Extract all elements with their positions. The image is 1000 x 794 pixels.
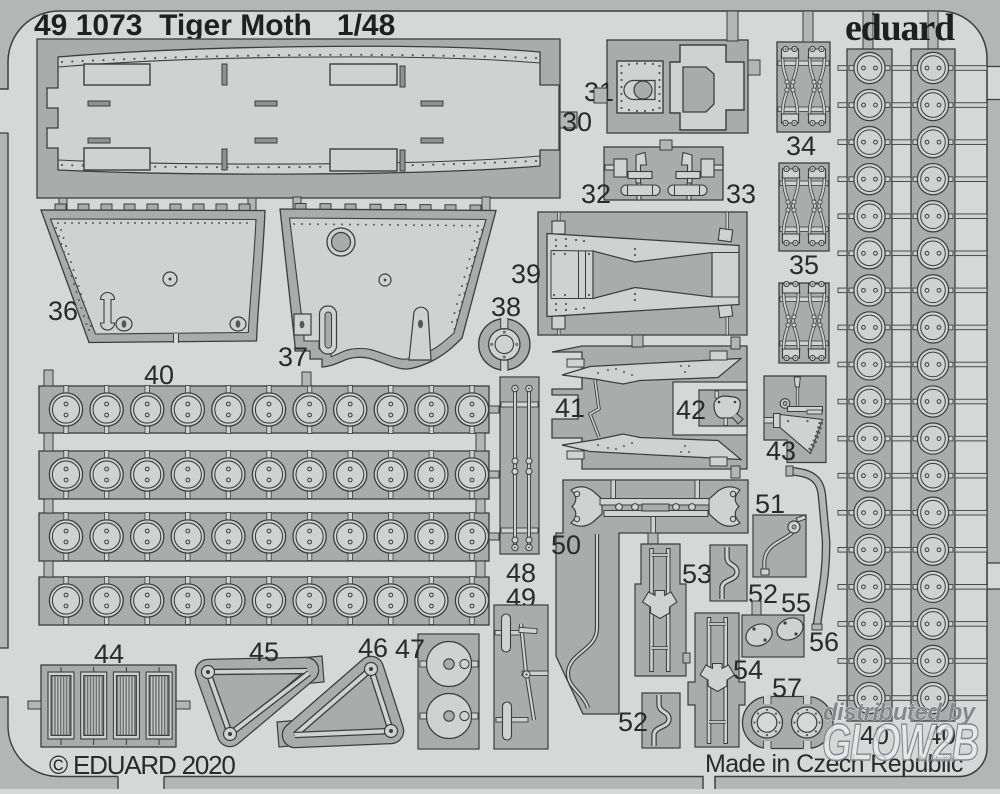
svg-text:46: 46 — [358, 633, 388, 663]
svg-text:42: 42 — [676, 395, 706, 425]
svg-text:51: 51 — [755, 489, 785, 519]
svg-text:43: 43 — [766, 436, 796, 466]
svg-text:49 1073 Tiger Moth 1/48: 49 1073 Tiger Moth 1/48 — [34, 9, 395, 42]
svg-text:36: 36 — [48, 296, 78, 326]
svg-text:41: 41 — [555, 393, 585, 423]
svg-text:© EDUARD 2020: © EDUARD 2020 — [49, 750, 235, 780]
svg-text:53: 53 — [682, 559, 712, 589]
svg-text:distributor: distributor — [916, 754, 957, 764]
svg-text:40: 40 — [144, 360, 174, 390]
svg-text:35: 35 — [789, 250, 819, 280]
svg-text:56: 56 — [809, 627, 839, 657]
svg-text:44: 44 — [94, 639, 124, 669]
svg-text:33: 33 — [726, 179, 756, 209]
svg-text:45: 45 — [249, 637, 279, 667]
svg-text:52: 52 — [618, 707, 648, 737]
svg-text:eduard: eduard — [845, 7, 955, 49]
svg-text:37: 37 — [278, 342, 308, 372]
svg-text:47: 47 — [395, 634, 425, 664]
svg-text:39: 39 — [511, 259, 541, 289]
svg-text:34: 34 — [786, 131, 816, 161]
svg-text:57: 57 — [772, 673, 802, 703]
svg-text:32: 32 — [581, 179, 611, 209]
svg-text:38: 38 — [491, 292, 521, 322]
svg-text:55: 55 — [781, 588, 811, 618]
svg-text:54: 54 — [733, 655, 763, 685]
svg-text:30: 30 — [562, 107, 592, 137]
svg-text:50: 50 — [551, 530, 581, 560]
